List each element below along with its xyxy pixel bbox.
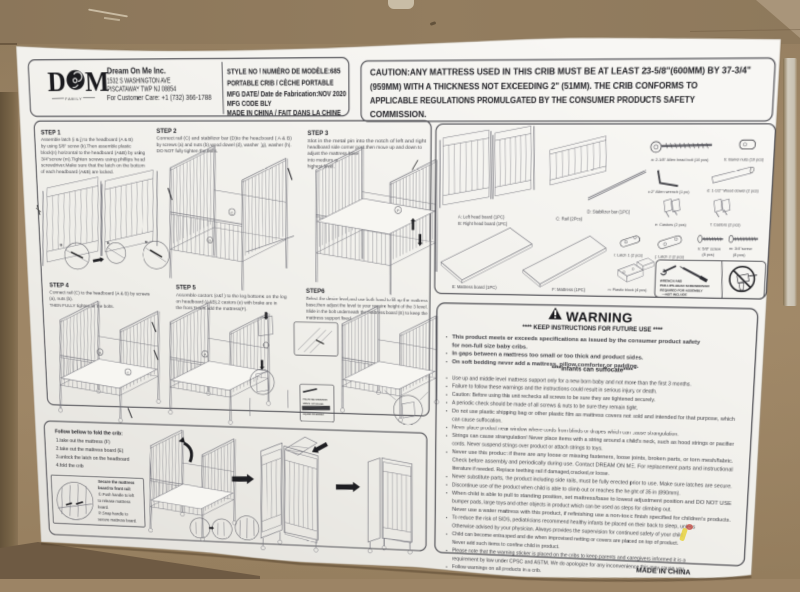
- svg-text:B: B: [107, 241, 110, 245]
- svg-text:STEP 2: STEP 2: [156, 128, 177, 135]
- svg-text:4.fold the crib: 4.fold the crib: [56, 463, 84, 470]
- svg-text:adjust the mattress base: adjust the mattress base: [307, 151, 358, 157]
- svg-text:COMMISSION.: COMMISSION.: [370, 109, 427, 119]
- svg-text:1532 S WASHINGTON AVE: 1532 S WASHINGTON AVE: [107, 77, 171, 85]
- svg-text:a: 2-1/8" Allen head bolt (10: a: 2-1/8" Allen head bolt (10 pcs): [651, 158, 710, 163]
- svg-text:WARNING: WARNING: [566, 309, 633, 326]
- svg-text:C: Rail (2Pcs): C: Rail (2Pcs): [556, 216, 583, 222]
- svg-text:DO NOT fully tighten the bolts: DO NOT fully tighten the bolts.: [156, 148, 218, 154]
- svg-text:MADE IN CHINA / FAIT DANS LA C: MADE IN CHINA / FAIT DANS LA CHINE: [227, 109, 341, 118]
- svg-text:D: D: [47, 66, 67, 97]
- svg-text:MFG CODE BLY: MFG CODE BLY: [227, 100, 272, 109]
- svg-text:(a), nuts (b).: (a), nuts (b).: [49, 296, 73, 302]
- svg-text:Slot in the metal pin into the: Slot in the metal pin into the notch of …: [307, 138, 426, 145]
- svg-text:STEP 3: STEP 3: [307, 130, 328, 137]
- svg-text:mattress support fixed.: mattress support fixed.: [306, 315, 352, 322]
- svg-text:CAUTION:ANY MATTRESS USED IN T: CAUTION:ANY MATTRESS USED IN THIS CRIB M…: [370, 65, 751, 77]
- svg-text:board.: board.: [98, 504, 109, 509]
- svg-text:j: Latch 2 (2 pcs): j: Latch 2 (2 pcs): [654, 255, 685, 260]
- svg-text:PISCATAWAY TWP NJ 08854: PISCATAWAY TWP NJ 08854: [107, 86, 177, 94]
- svg-text:E: Mattress board (1PC): E: Mattress board (1PC): [452, 284, 497, 290]
- svg-text:Connect rail (C) and stabiliz: Connect rail (C) and stabilizer bar (D)t…: [156, 136, 292, 142]
- svg-text:APPLICABLE REGULATIONS PROMULG: APPLICABLE REGULATIONS PROMULGATED BY TH…: [370, 95, 696, 106]
- svg-text:B: B: [60, 243, 63, 247]
- svg-text:D: Stabilizer bar (1PC): D: Stabilizer bar (1PC): [587, 209, 631, 215]
- svg-text:by screws (a) and nuts (b),woo: by screws (a) and nuts (b),wood dowel (d…: [156, 142, 291, 148]
- svg-text:i: Latch 1 (2 pcs): i: Latch 1 (2 pcs): [614, 253, 644, 258]
- svg-text:PORTABLE CRIB / CÈCHE PORTABLE: PORTABLE CRIB / CÈCHE PORTABLE: [227, 78, 334, 88]
- svg-text:STYLE NO / NUMÉRO DE MODÈLE:68: STYLE NO / NUMÉRO DE MODÈLE:685: [227, 66, 341, 76]
- svg-text:STEP 1: STEP 1: [41, 129, 62, 136]
- svg-text:m: 3/4"screw: m: 3/4"screw: [729, 247, 752, 252]
- svg-text:STEP 4: STEP 4: [49, 282, 69, 289]
- svg-text:STEP6: STEP6: [306, 288, 325, 295]
- svg-text:3/4"screw (m).Tighten screws u: 3/4"screw (m).Tighten screws using phill…: [41, 156, 146, 162]
- svg-text:(959MM) WITH A THICKNESS NOT E: (959MM) WITH A THICKNESS NOT EXCEEDING 2…: [370, 80, 699, 91]
- svg-text:(8 pcs): (8 pcs): [702, 253, 715, 257]
- svg-text:b: Barrel nuts (10 pcs): b: Barrel nuts (10 pcs): [724, 158, 765, 163]
- svg-text:k: 5/8" screw: k: 5/8" screw: [698, 247, 721, 252]
- svg-text:B: Right head board (1PC): B: Right head board (1PC): [458, 221, 508, 227]
- svg-text:n: Plastic block (4 pcs): n: Plastic block (4 pcs): [608, 288, 648, 293]
- svg-text:STEP 5: STEP 5: [176, 284, 197, 291]
- svg-text:F A M I L Y: F A M I L Y: [65, 97, 82, 101]
- svg-text:—NOT INCLUDE: —NOT INCLUDE: [662, 292, 687, 297]
- svg-text:(8 pcs): (8 pcs): [733, 253, 746, 257]
- svg-text:B: B: [145, 240, 148, 244]
- svg-text:A: Left head board (1PC): A: Left head board (1PC): [458, 214, 505, 220]
- svg-text:block(n) horizontal to the hea: block(n) horizontal to the headboard (A&…: [41, 150, 146, 156]
- svg-text:For Customer Care: +1 (732) 36: For Customer Care: +1 (732) 366-1788: [107, 94, 212, 102]
- svg-text:e: Castors (2 pcs): e: Castors (2 pcs): [655, 223, 687, 228]
- svg-text:into medium or: into medium or: [307, 157, 338, 163]
- svg-text:headboard side corner post.the: headboard side corner post.then move up …: [307, 144, 422, 151]
- svg-text:c:2" Allen wrench (1 pc): c:2" Allen wrench (1 pc): [648, 190, 690, 195]
- svg-text:f: Castors (2 pcs): f: Castors (2 pcs): [710, 223, 741, 228]
- svg-text:by using 5/8" screw (k).Then a: by using 5/8" screw (k).Then assemble pl…: [41, 144, 132, 150]
- svg-text:Assemble latch (i & j) to the: Assemble latch (i & j) to the headboard …: [41, 137, 134, 143]
- svg-text:Dream On Me Inc.: Dream On Me Inc.: [107, 66, 166, 76]
- svg-text:screwdriver.Make sure that the: screwdriver.Make sure that the latch on …: [41, 163, 145, 170]
- svg-text:F: Mattress (1PC): F: Mattress (1PC): [552, 287, 586, 293]
- svg-text:MFG DATE/ Date de Fabrication:: MFG DATE/ Date de Fabrication:NOV 2020: [227, 91, 346, 99]
- svg-text:d: 1-1/2" Wood dowel (2 pcs): d: 1-1/2" Wood dowel (2 pcs): [707, 189, 759, 194]
- svg-text:of each headboard (A&B) are lo: of each headboard (A&B) are locked.: [41, 169, 114, 175]
